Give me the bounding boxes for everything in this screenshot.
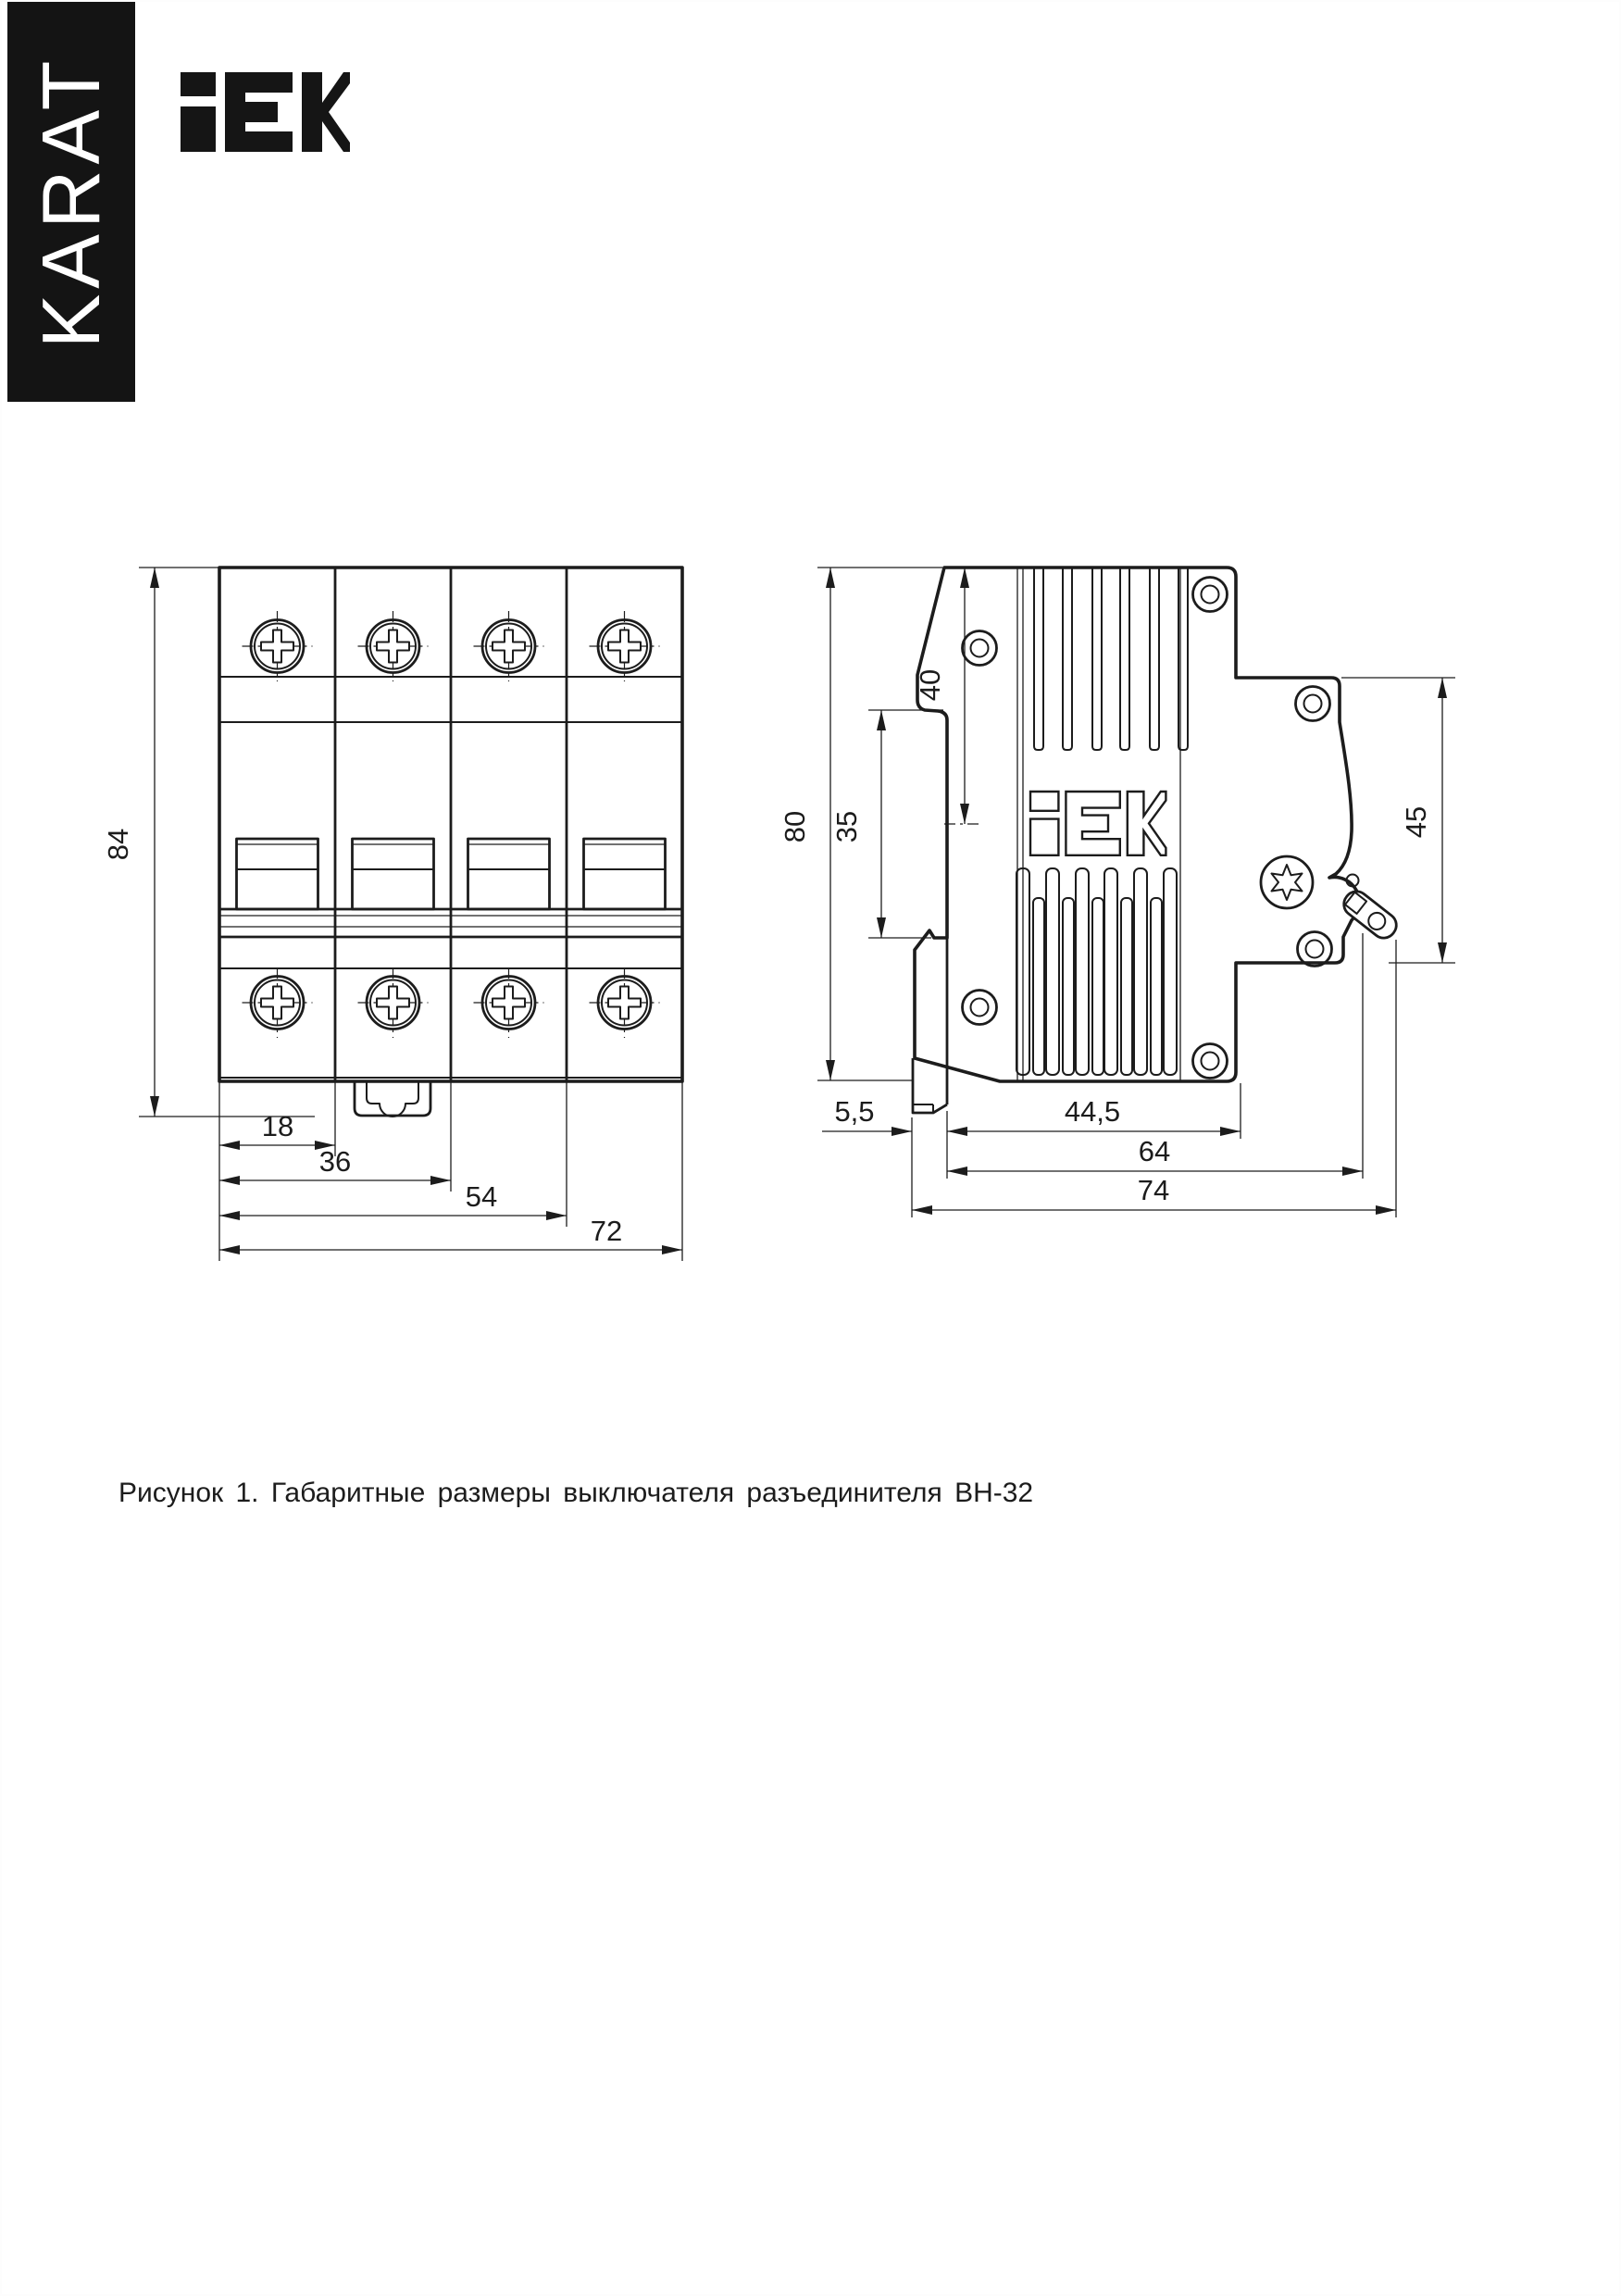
dim-36-label: 36 (319, 1145, 351, 1178)
dim-40-label: 40 (914, 669, 946, 701)
side-view: 80 35 40 (779, 568, 1455, 1217)
dim-80-label: 80 (779, 811, 811, 842)
dim-35-label: 35 (830, 811, 863, 842)
dim-72-label: 72 (591, 1215, 622, 1247)
release-latch (1339, 887, 1401, 943)
dim-84-label: 84 (102, 829, 134, 860)
iek-logo-header (181, 72, 350, 152)
dim-5-5-label: 5,5 (834, 1095, 874, 1128)
din-clip-side (913, 938, 947, 1113)
iek-logo-side (1030, 792, 1166, 855)
dims-front-bottom: 18 36 54 72 (219, 1081, 682, 1261)
dim-44-5-label: 44,5 (1065, 1095, 1120, 1128)
dim-54-label: 54 (466, 1180, 497, 1213)
vent-slots-top (1034, 568, 1188, 750)
dim-64-label: 64 (1139, 1135, 1170, 1167)
din-clip-front (355, 1081, 430, 1117)
technical-drawing: 84 18 36 54 (0, 0, 1621, 2296)
figure-caption: Рисунок 1. Габаритные размеры выключател… (118, 1478, 1033, 1509)
vent-slots-bottom (1016, 868, 1177, 1075)
dim-18-label: 18 (262, 1110, 293, 1142)
dim-45-label: 45 (1400, 806, 1432, 838)
dim-74-label: 74 (1138, 1174, 1169, 1206)
dim-35: 35 (830, 710, 943, 938)
front-view: 84 18 36 54 (102, 568, 682, 1261)
document-page: KARAT (0, 0, 1621, 2296)
torx-screw (1261, 856, 1313, 908)
